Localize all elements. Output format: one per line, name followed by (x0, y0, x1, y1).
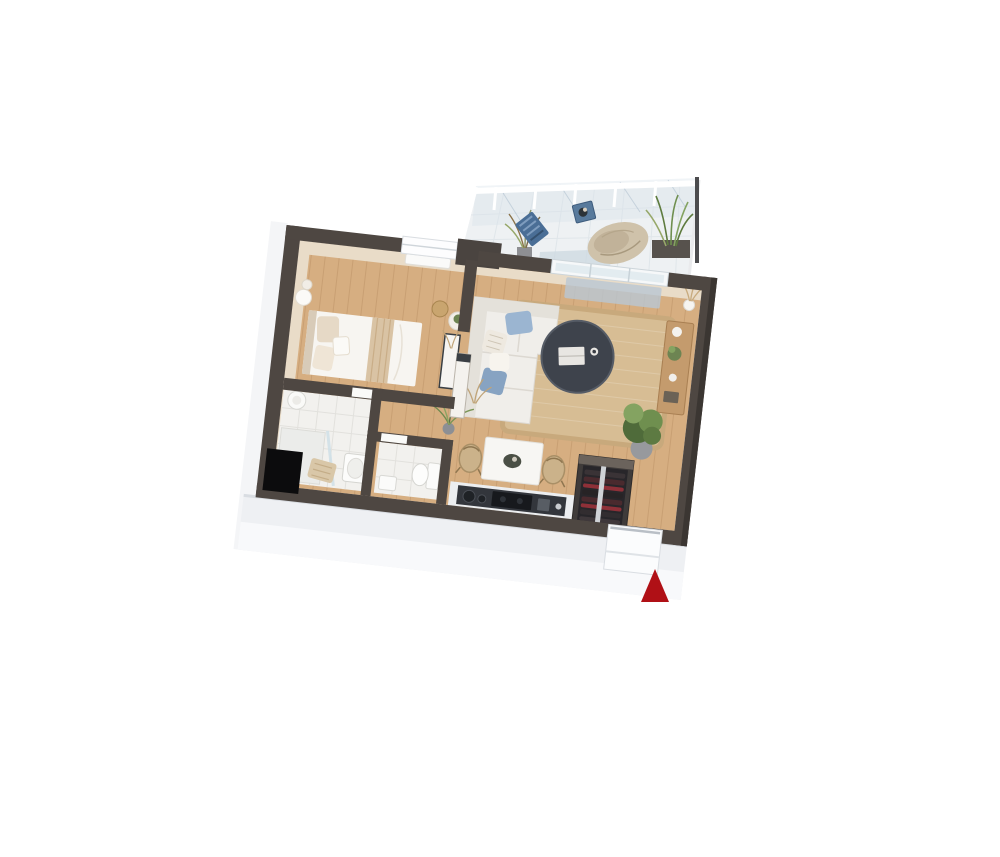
bedside-lamp (301, 279, 312, 290)
utensil-holder (537, 498, 550, 511)
bed-pillow-small (333, 336, 350, 355)
railing-corner-post (695, 177, 699, 263)
dark-shaft (262, 448, 303, 494)
floorplan-canvas (0, 0, 1000, 857)
sideboard-books (663, 391, 679, 404)
cushion-blue-top (505, 310, 534, 335)
apartment-3d-floorplan (0, 0, 1000, 857)
entrance-door-recess (604, 524, 663, 575)
sink-bowl-small (477, 494, 486, 503)
wardrobe (571, 455, 634, 532)
wc-basin (378, 475, 396, 491)
half-wall-cap (456, 353, 471, 363)
books (558, 347, 584, 366)
cushion-white (489, 353, 509, 371)
